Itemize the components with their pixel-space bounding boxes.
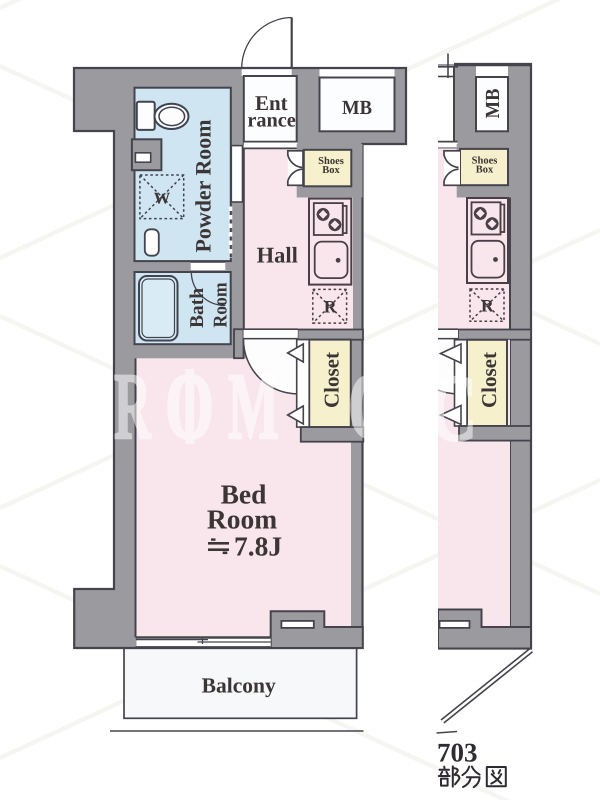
svg-text:O: O <box>348 353 398 459</box>
svg-text:Room: Room <box>211 283 232 328</box>
svg-text:Box: Box <box>476 165 494 176</box>
svg-text:Powder Room: Powder Room <box>191 120 216 253</box>
svg-text:Closet: Closet <box>477 352 501 408</box>
svg-text:Hall: Hall <box>257 243 298 268</box>
svg-text:Bath: Bath <box>187 288 208 328</box>
svg-text:rance: rance <box>247 109 295 131</box>
svg-text:Box: Box <box>322 165 340 176</box>
svg-text:7.8J: 7.8J <box>234 531 282 562</box>
svg-text:M: M <box>228 353 279 459</box>
svg-text:R: R <box>324 296 337 316</box>
svg-text:C: C <box>429 355 477 461</box>
svg-text:W: W <box>154 189 171 208</box>
svg-text:Balcony: Balcony <box>202 674 276 698</box>
svg-text:703: 703 <box>437 738 478 768</box>
svg-text:Closet: Closet <box>320 352 344 408</box>
svg-text:MB: MB <box>342 97 372 119</box>
svg-text:MB: MB <box>482 89 504 119</box>
svg-text:R: R <box>114 353 152 459</box>
svg-text:R: R <box>481 296 494 316</box>
